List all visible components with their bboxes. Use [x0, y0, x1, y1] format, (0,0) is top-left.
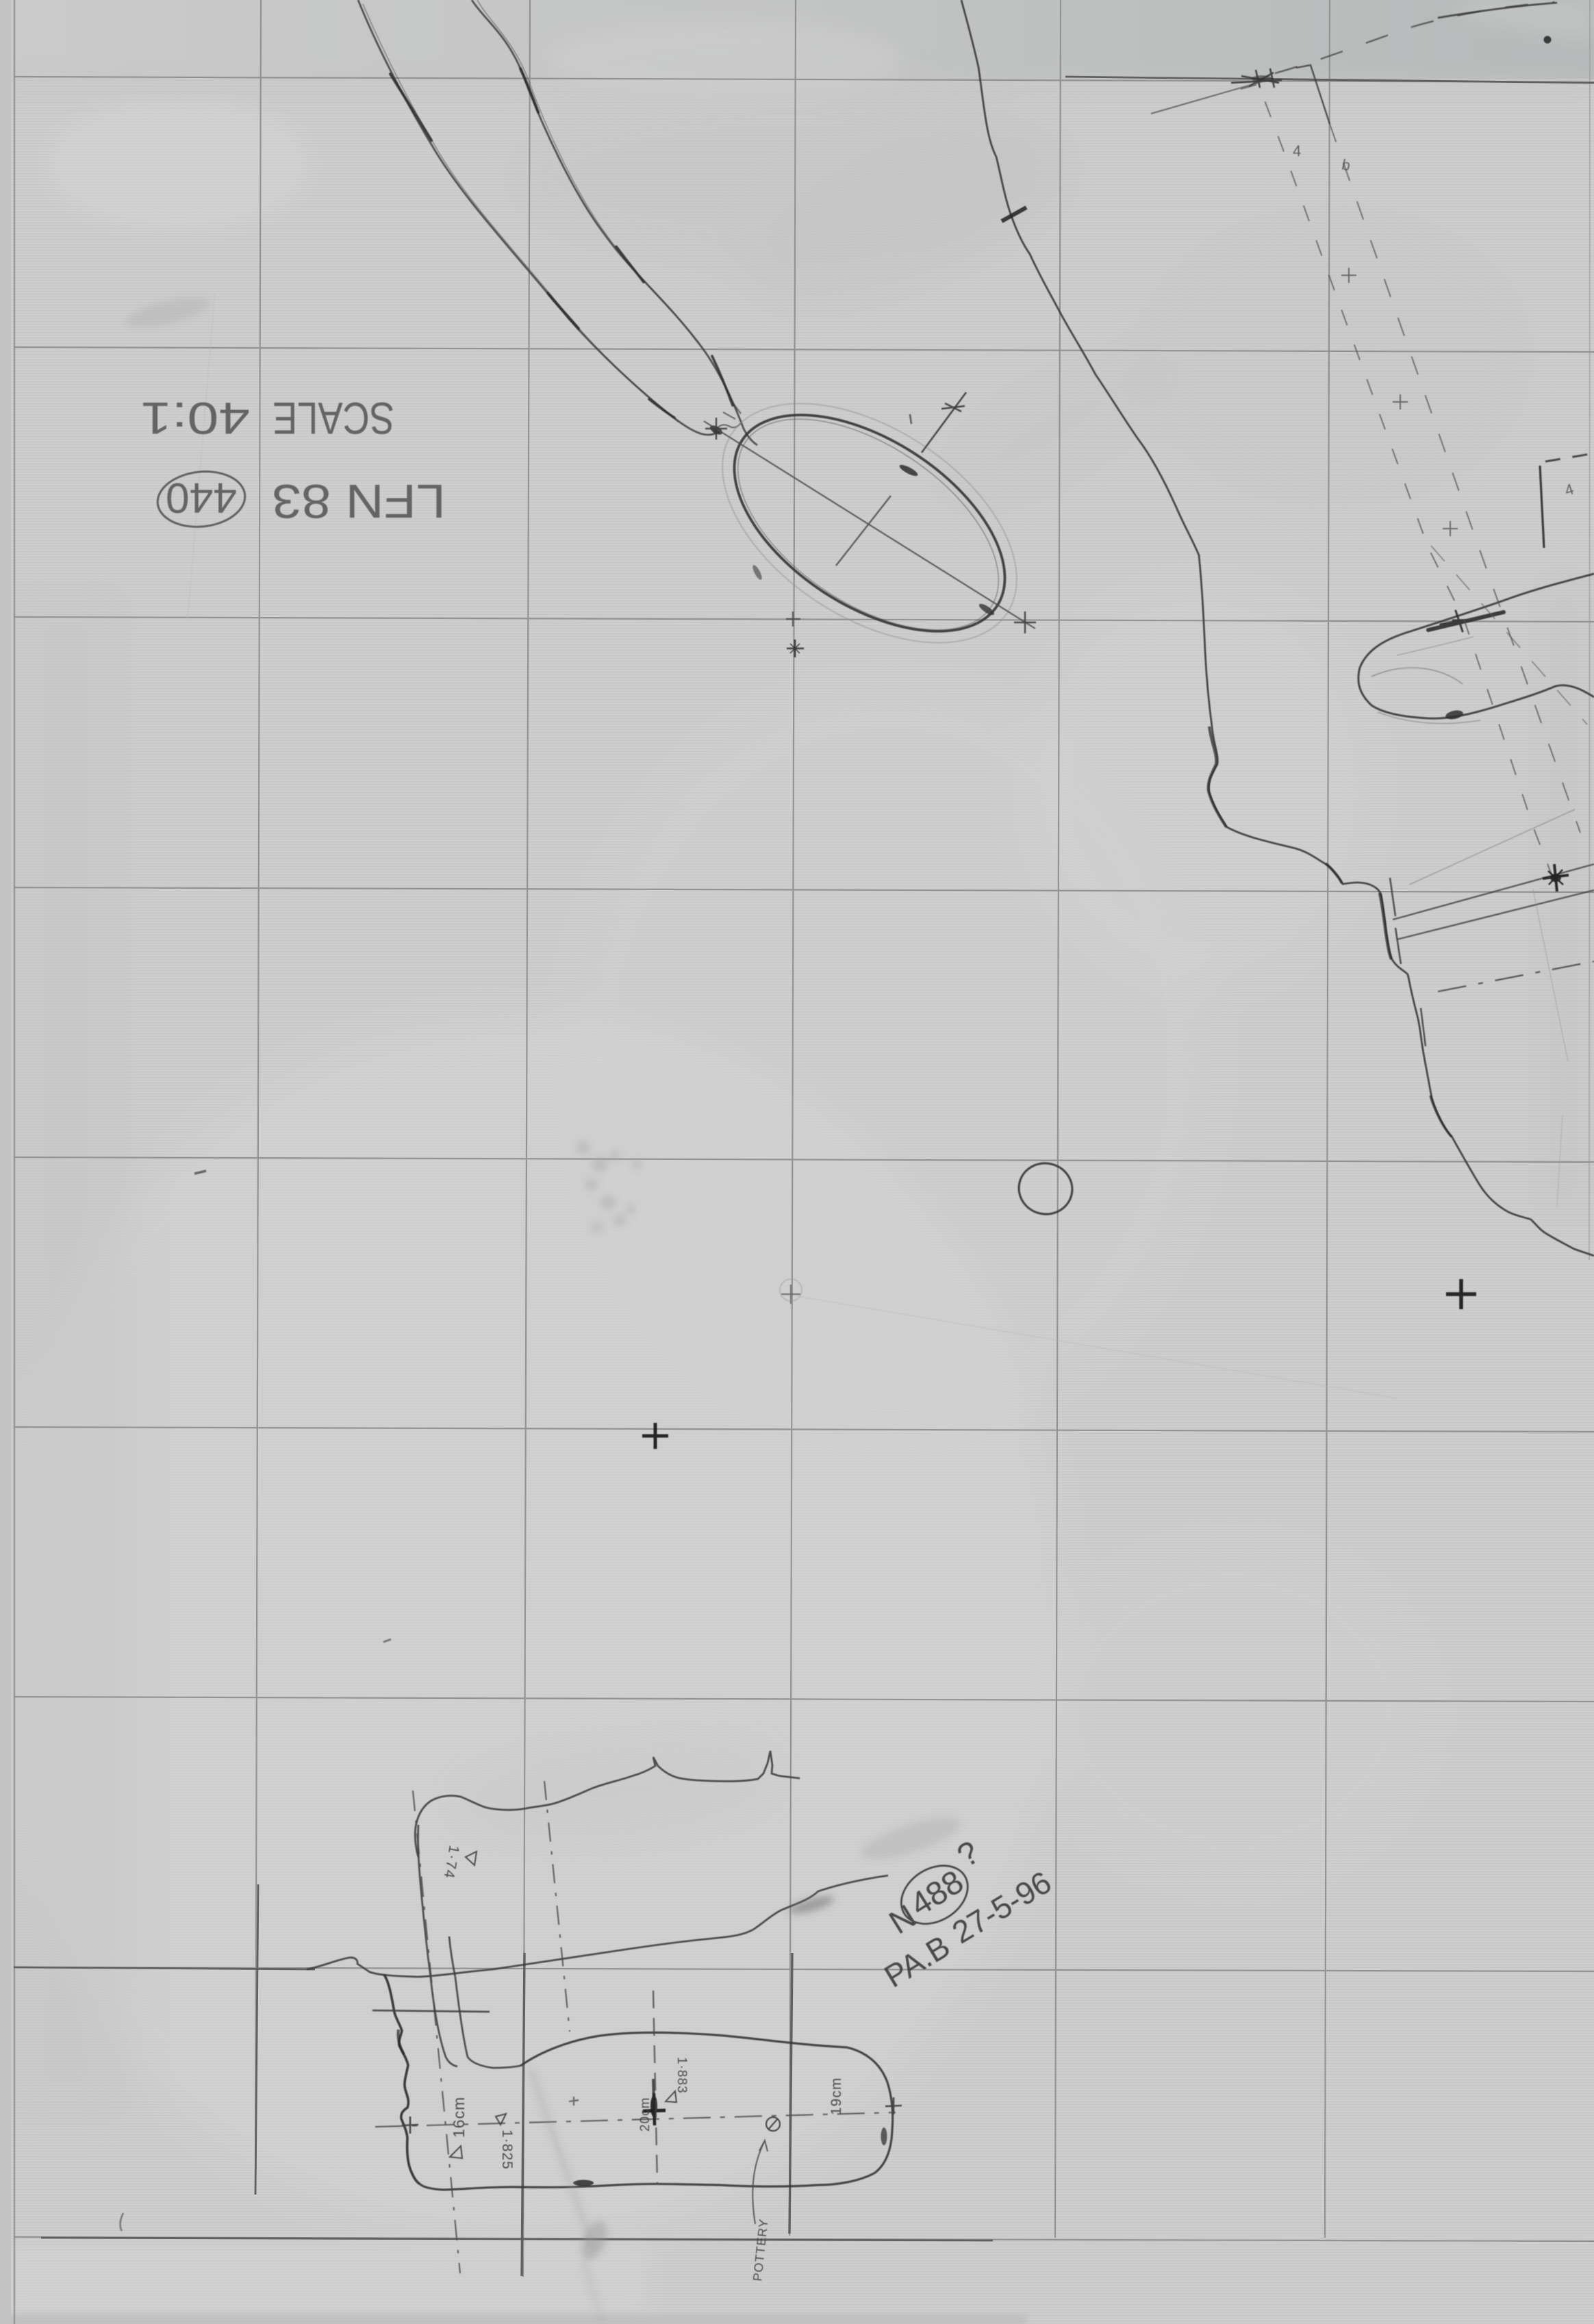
svg-text:1·883: 1·883	[674, 2057, 689, 2094]
svg-text:LFN 83: LFN 83	[272, 475, 446, 528]
svg-text:19cm: 19cm	[828, 2077, 844, 2115]
svg-text:440: 440	[166, 474, 237, 521]
svg-text:20cm: 20cm	[638, 2097, 653, 2132]
svg-text:4: 4	[1293, 142, 1301, 160]
svg-text:40:1: 40:1	[140, 393, 250, 444]
svg-text:SCALE: SCALE	[273, 393, 394, 444]
svg-text:16cm: 16cm	[450, 2097, 468, 2138]
svg-text:1·825: 1·825	[499, 2130, 515, 2170]
